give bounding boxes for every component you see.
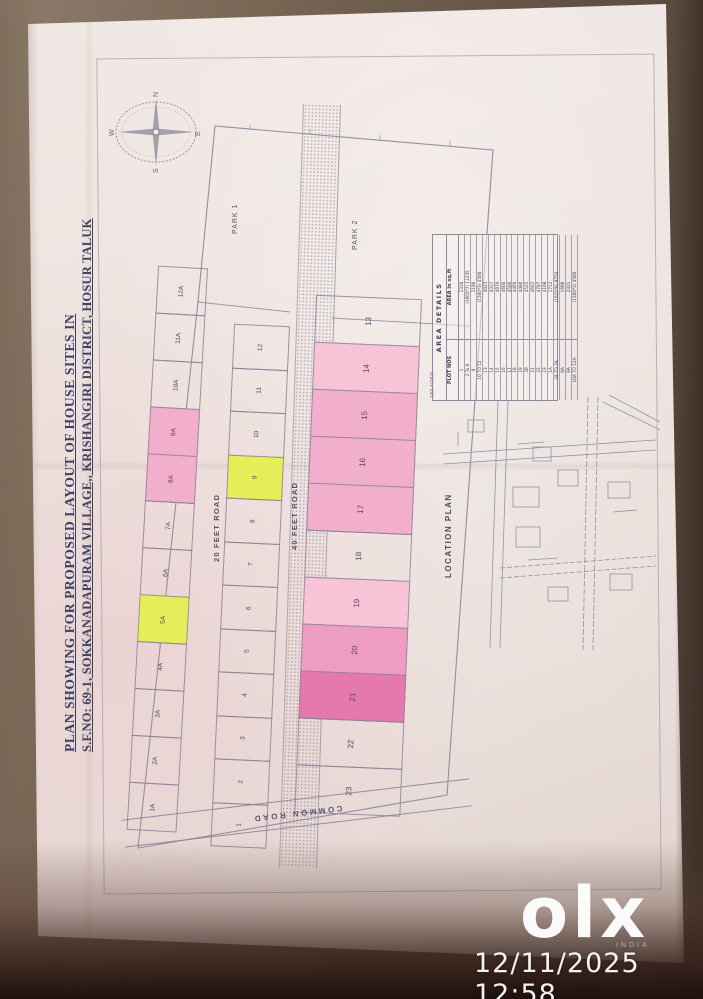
plot-number: 5 [244,649,251,653]
plot-nos-cell: 18 [512,339,517,400]
plan-title-line1: PLAN SHOWING FOR PROPOSED LAYOUT OF HOUS… [62,148,78,752]
plot-cell: 7 [222,541,280,588]
plot-number: 8A [167,475,174,483]
plot-number: 22 [346,739,355,748]
location-plan-label: LOCATION PLAN [444,493,453,578]
area-value-cell: 1318 [459,235,464,339]
plot-nos-cell: 16 [501,339,506,400]
area-value-cell: 2321 [566,235,571,339]
plot-cell: 11A [153,313,206,364]
common-road-label: COMMON ROAD [251,803,342,823]
plot-cell: 20 [300,623,408,675]
plot-number: 17 [355,504,364,513]
twenty-feet-road-label: 20 FEET ROAD [212,494,221,562]
area-table-header: PLOT NOS AREA in sq.ft [447,235,459,400]
plot-number: 6 [246,606,253,610]
plot-number: 15 [359,410,368,419]
plot-nos-cell: 10 TO 12 [477,339,482,400]
area-value-cell: 1600 [560,235,565,339]
park-2-label: PARK 2 [352,220,359,250]
plot-number: 14 [361,363,370,372]
area-value-cell: 4317 [489,235,494,339]
plot-cell: 18 [304,530,412,582]
area-value-cell: 1712 [548,235,553,339]
area-value-cell: 2190 [471,235,476,339]
area-value-cell: 4525 [524,235,529,339]
area-value-cell: 4662 [530,235,535,339]
plot-nos-cell: 22 [536,339,541,400]
plot-nos-cell: 20 [524,339,529,400]
plot-cell: 2A [129,735,182,786]
plot-number: 2 [238,780,245,784]
plot-number: 12A [178,285,186,297]
plot-cell: 12 [232,324,290,371]
plot-number: 10 [253,430,260,438]
plot-cell: 17 [306,483,414,535]
plot-cell: 8A [145,453,198,504]
plot-cell: 13 [314,295,422,347]
plot-cell: 9 [226,454,284,501]
area-value-cell: 4787 [536,235,541,339]
area-table-body: 1 1318 2 To 8 (1605*7) 11235 9 2190 10 T… [459,235,578,400]
park-1-label: PARK 1 [232,204,239,234]
plot-nos-cell: 14 [489,339,494,400]
plot-cell: 16 [308,436,416,488]
plot-cell: 5A [137,594,190,645]
area-value-cell: 4500 [507,235,512,339]
plot-number: 18 [354,551,363,560]
area-value-cell: 4480 [518,235,523,339]
plot-cell: 5 [218,628,276,675]
plot-cell: 14 [312,342,420,394]
plot-number: 9 [252,476,259,480]
plot-nos-cell: 21 [530,339,535,400]
forty-feet-road-label: 40 FEET ROAD [290,482,299,550]
plot-nos-cell: 23 [542,339,547,400]
plot-cell: 3 [214,715,272,762]
plot-cell: 10 [228,411,286,458]
plot-cell: 8 [224,498,282,545]
plot-nos-cell: 13 [483,339,488,400]
plot-number: 19 [352,598,361,607]
photographed-layout-plan: PLAN SHOWING FOR PROPOSED LAYOUT OF HOUS… [0,0,703,999]
plot-number: 5A [160,615,167,623]
plot-number: 13 [363,316,372,325]
area-value-cell: 4460 [512,235,517,339]
plot-cell: 4A [134,641,187,692]
plan-title-line2: S.F.NO: 69-1, SOKKANADAPURAM VILLAGE,, K… [80,148,95,752]
area-table-col2-header: AREA in sq.ft [447,235,458,339]
area-value-cell: (1500*3) 4500 [572,235,577,339]
plot-number: 1A [149,803,156,811]
plot-number: 11 [255,387,262,394]
area-value-cell: 4023 [483,235,488,339]
plot-number: 8 [250,519,257,523]
area-details-table: AREA DETAILS PLOT NOS AREA in sq.ft 1 13… [432,234,558,401]
area-value-cell: 4108 [542,235,547,339]
plot-number: 4A [157,662,164,670]
plot-nos-cell: 9 [471,339,476,400]
plot-number: 3A [154,709,161,717]
plot-nos-cell: 1A [548,339,553,400]
plot-cell: 15 [310,389,418,441]
plot-number: 10A [173,379,181,391]
plot-cell: 6A [140,547,193,598]
area-table-row: 10A TO 12A (1500*3) 4500 [572,235,578,400]
area-value-cell: (1625*6) 9750 [554,235,559,339]
plot-nos-cell: 1 [459,339,464,400]
plot-nos-cell: 2A TO 7A [554,339,559,400]
plot-column-east: 1314151617181920212223 [294,296,422,817]
plot-number: 20 [350,645,359,654]
plot-nos-cell: 10A TO 12A [572,339,577,400]
photo-timestamp: 12/11/2025 12:58 [474,948,703,999]
plot-number: 12 [257,343,264,351]
plot-number: 9A [170,428,177,436]
area-value-cell: 4970 [495,235,500,339]
plot-nos-cell: 19 [518,339,523,400]
area-table-title: AREA DETAILS [433,235,447,400]
plot-cell: 12A [155,266,208,317]
plot-number: 7A [165,521,172,529]
plot-cell: 9A [148,406,201,457]
plot-cell: 3A [132,688,185,739]
plot-number: 16 [357,457,366,466]
plot-number: 6A [162,568,169,576]
plot-cell: 10A [150,359,203,410]
area-table-col1-header: PLOT NOS [447,339,458,400]
plot-cell: 19 [302,577,410,629]
plot-nos-cell: 9A [566,339,571,400]
area-value-cell: (1500*3) 4500 [477,235,482,339]
plot-cell: 2 [212,758,270,805]
plot-cell: 4 [216,671,274,718]
plot-number: 4 [242,693,249,697]
plot-nos-cell: 15 [495,339,500,400]
plot-cell: 6 [220,584,278,631]
plot-nos-cell: 17 [507,339,512,400]
plot-number: 21 [348,692,357,701]
plot-nos-cell: 8A [560,339,565,400]
plot-nos-cell: 2 To 8 [465,339,470,400]
plot-number: 7 [248,563,255,567]
plot-number: 11A [175,332,183,343]
plot-number: 2A [152,756,159,764]
plot-cell: 22 [296,717,404,769]
plot-cell: 11 [230,367,288,414]
area-value-cell: (1605*7) 11235 [465,235,470,339]
plan-title: PLAN SHOWING FOR PROPOSED LAYOUT OF HOUS… [62,148,95,752]
plot-number: 3 [240,736,247,740]
area-value-cell: 4600 [501,235,506,339]
plot-cell: 7A [142,500,195,551]
plot-cell: 21 [298,670,406,722]
